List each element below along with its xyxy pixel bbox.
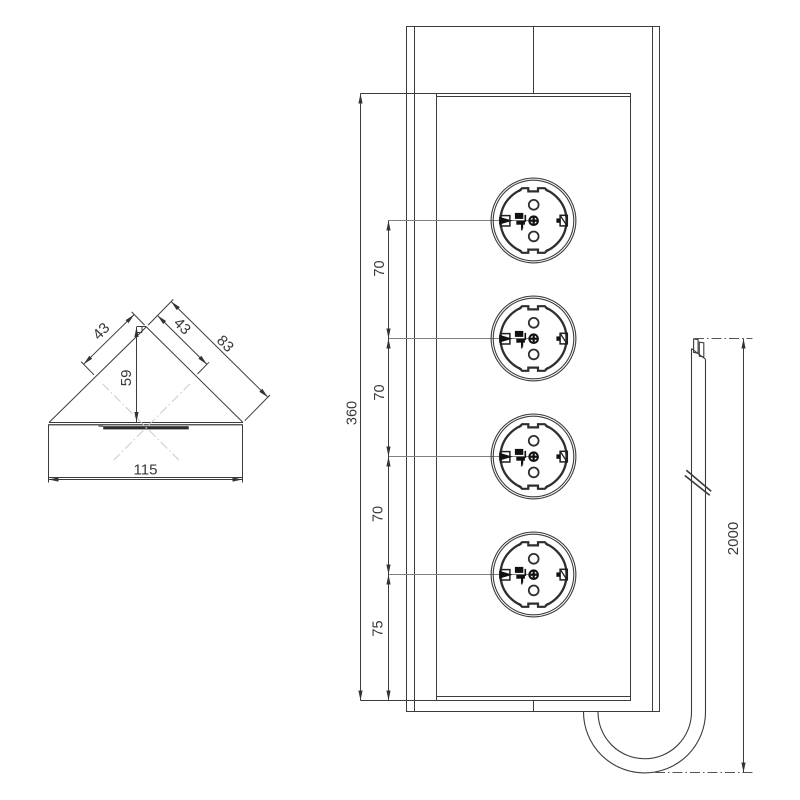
svg-text:360: 360 — [344, 401, 360, 425]
svg-text:115: 115 — [134, 462, 158, 479]
svg-text:59: 59 — [118, 370, 135, 387]
svg-text:75: 75 — [371, 620, 387, 636]
svg-text:43: 43 — [90, 320, 114, 344]
svg-text:2000: 2000 — [725, 522, 742, 555]
svg-text:70: 70 — [372, 384, 388, 400]
svg-text:43: 43 — [170, 315, 194, 339]
svg-text:83: 83 — [213, 332, 237, 356]
svg-text:70: 70 — [371, 506, 387, 522]
svg-text:70: 70 — [372, 260, 388, 276]
